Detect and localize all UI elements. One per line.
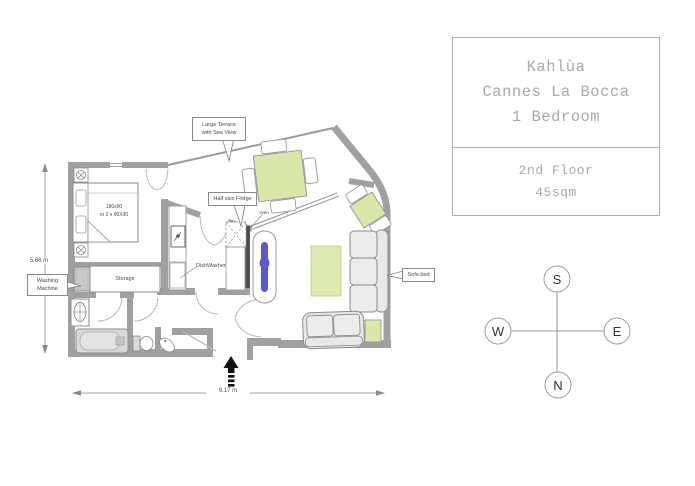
callout-large-terrace: Large Terrace with Sea View — [192, 117, 246, 141]
pillow — [76, 190, 86, 206]
compass-letter-east: E — [613, 324, 622, 339]
property-info-card: Kahlùa Cannes La Bocca 1 Bedroom 2nd Flo… — [452, 37, 660, 216]
bed-size-label: 180x90 or 2 x 90X90 — [90, 204, 138, 219]
bathtub-faucet — [116, 337, 124, 345]
ceiling-light-icon — [74, 243, 88, 257]
property-area: 45sqm — [453, 182, 659, 204]
callout-washing-machine-line1: Washing — [28, 277, 67, 286]
rug — [311, 246, 341, 296]
pillow — [76, 216, 86, 233]
height-dimension-label: 5.66 m — [24, 258, 54, 264]
property-title-section: Kahlùa Cannes La Bocca 1 Bedroom — [453, 38, 659, 148]
loveseat-back — [305, 336, 362, 347]
terrace-callout-pointer — [222, 138, 234, 161]
bathroom-door — [98, 297, 122, 321]
oven-leader-line — [251, 215, 262, 227]
bed-size-line2: or 2 x 90X90 — [90, 212, 138, 220]
callout-washing-machine: Washing Machine — [27, 274, 68, 296]
property-details-section: 2nd Floor 45sqm — [453, 148, 659, 214]
toilet-bowl — [140, 337, 153, 351]
loveseat — [302, 311, 364, 349]
callout-sofa-bed-label: Sofa bed — [403, 271, 434, 280]
chair — [303, 158, 318, 184]
compass-letter-north: N — [553, 378, 562, 393]
paddle-board-stripe — [261, 242, 268, 292]
chair — [261, 139, 287, 154]
storage-label: Storage — [92, 276, 158, 284]
bedroom-terrace-door-left — [146, 169, 157, 190]
callout-half-fridge-label: Half size Fridge — [209, 195, 256, 204]
compass-rose: S W E N — [485, 266, 630, 398]
callout-large-terrace-line2: with Sea View — [193, 129, 245, 138]
bathroom-fixtures — [71, 299, 177, 355]
callout-washing-machine-line2: Machine — [28, 285, 67, 294]
callout-large-terrace-line1: Large Terrace — [193, 121, 245, 130]
wall-top-b — [122, 162, 168, 168]
property-floor: 2nd Floor — [453, 160, 659, 182]
kitchen-door-left — [200, 216, 214, 245]
dishwasher-label: DishWasher — [196, 263, 238, 271]
sofa-cushion — [350, 231, 377, 258]
bathtub-inner — [80, 332, 120, 350]
chair — [242, 168, 257, 194]
wall-top-a — [68, 162, 110, 168]
floor-plan-page: { "info_box": { "title_line1": "Kahlùa",… — [0, 0, 695, 486]
hall-living-door-bottom — [235, 318, 261, 337]
living-room-furniture — [302, 230, 388, 349]
toilet-tank — [133, 336, 140, 351]
sofa-bed — [350, 230, 388, 312]
loveseat-cushion — [306, 315, 333, 337]
entrance-arrow — [224, 356, 239, 391]
kitchen-bottom-door — [196, 292, 218, 314]
hall-living-door-top — [235, 299, 261, 318]
bedroom-terrace-door-right — [157, 169, 168, 190]
sofa-cushion — [350, 285, 377, 312]
wall-bath-top-a — [68, 292, 96, 298]
loveseat-cushion — [333, 314, 360, 336]
bed-size-line1: 180x90 — [90, 204, 138, 212]
wall-entry-top — [172, 328, 212, 335]
width-dimension-label: 9.17 m — [206, 388, 250, 394]
washing-machine — [74, 267, 90, 291]
wall-bedroom-right — [161, 199, 168, 292]
bedroom-window — [110, 164, 122, 167]
property-name: Kahlùa — [453, 55, 659, 80]
callout-sofa-bed: Sofa bed — [402, 268, 435, 282]
property-type: 1 Bedroom — [453, 105, 659, 130]
sofa-cushion — [350, 258, 377, 285]
ceiling-light-icon — [74, 168, 88, 182]
side-table — [365, 320, 381, 342]
callout-half-fridge: Half size Fridge — [208, 192, 257, 206]
wc-door — [134, 297, 158, 321]
paddle-board — [253, 231, 276, 303]
terrace-table — [253, 150, 306, 202]
property-location: Cannes La Bocca — [453, 80, 659, 105]
compass-letter-south: S — [553, 272, 562, 287]
oven-label: oven — [259, 209, 277, 217]
wall-entry-step-v — [247, 338, 253, 360]
compass-letter-west: W — [492, 324, 505, 339]
kitchen-counter — [169, 206, 186, 290]
